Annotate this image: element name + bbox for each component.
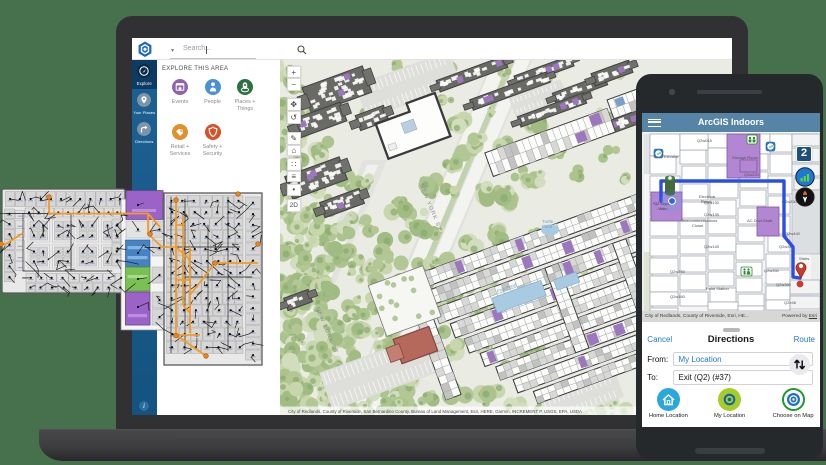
- svg-text:Stairs: Stairs: [799, 256, 809, 261]
- svg-text:Elevator: Elevator: [664, 154, 679, 159]
- svg-text:Q2w440: Q2w440: [785, 231, 801, 236]
- svg-text:Q2e46: Q2e46: [784, 300, 797, 305]
- svg-text:Closet: Closet: [692, 223, 704, 228]
- svg-text:City of Redlands, County of Ri: City of Redlands, County of Riverside, S…: [288, 409, 582, 414]
- svg-text:Q2w220: Q2w220: [744, 172, 760, 177]
- svg-text:Storage Room: Storage Room: [732, 155, 758, 160]
- svg-text:Pond: Pond: [542, 224, 553, 229]
- svg-text:Room: Room: [701, 199, 712, 204]
- svg-text:AC Duct Shaft: AC Duct Shaft: [747, 218, 773, 223]
- svg-text:Q2w360: Q2w360: [776, 282, 792, 287]
- svg-text:Q2w150: Q2w150: [670, 269, 686, 274]
- svg-text:Q2w015: Q2w015: [697, 138, 713, 143]
- svg-text:Q2w160: Q2w160: [670, 294, 686, 299]
- svg-text:Point Station: Point Station: [706, 286, 729, 291]
- svg-text:Q2w145: Q2w145: [704, 244, 720, 249]
- svg-text:Q2w135: Q2w135: [704, 212, 720, 217]
- svg-text:Q2w350: Q2w350: [764, 268, 780, 273]
